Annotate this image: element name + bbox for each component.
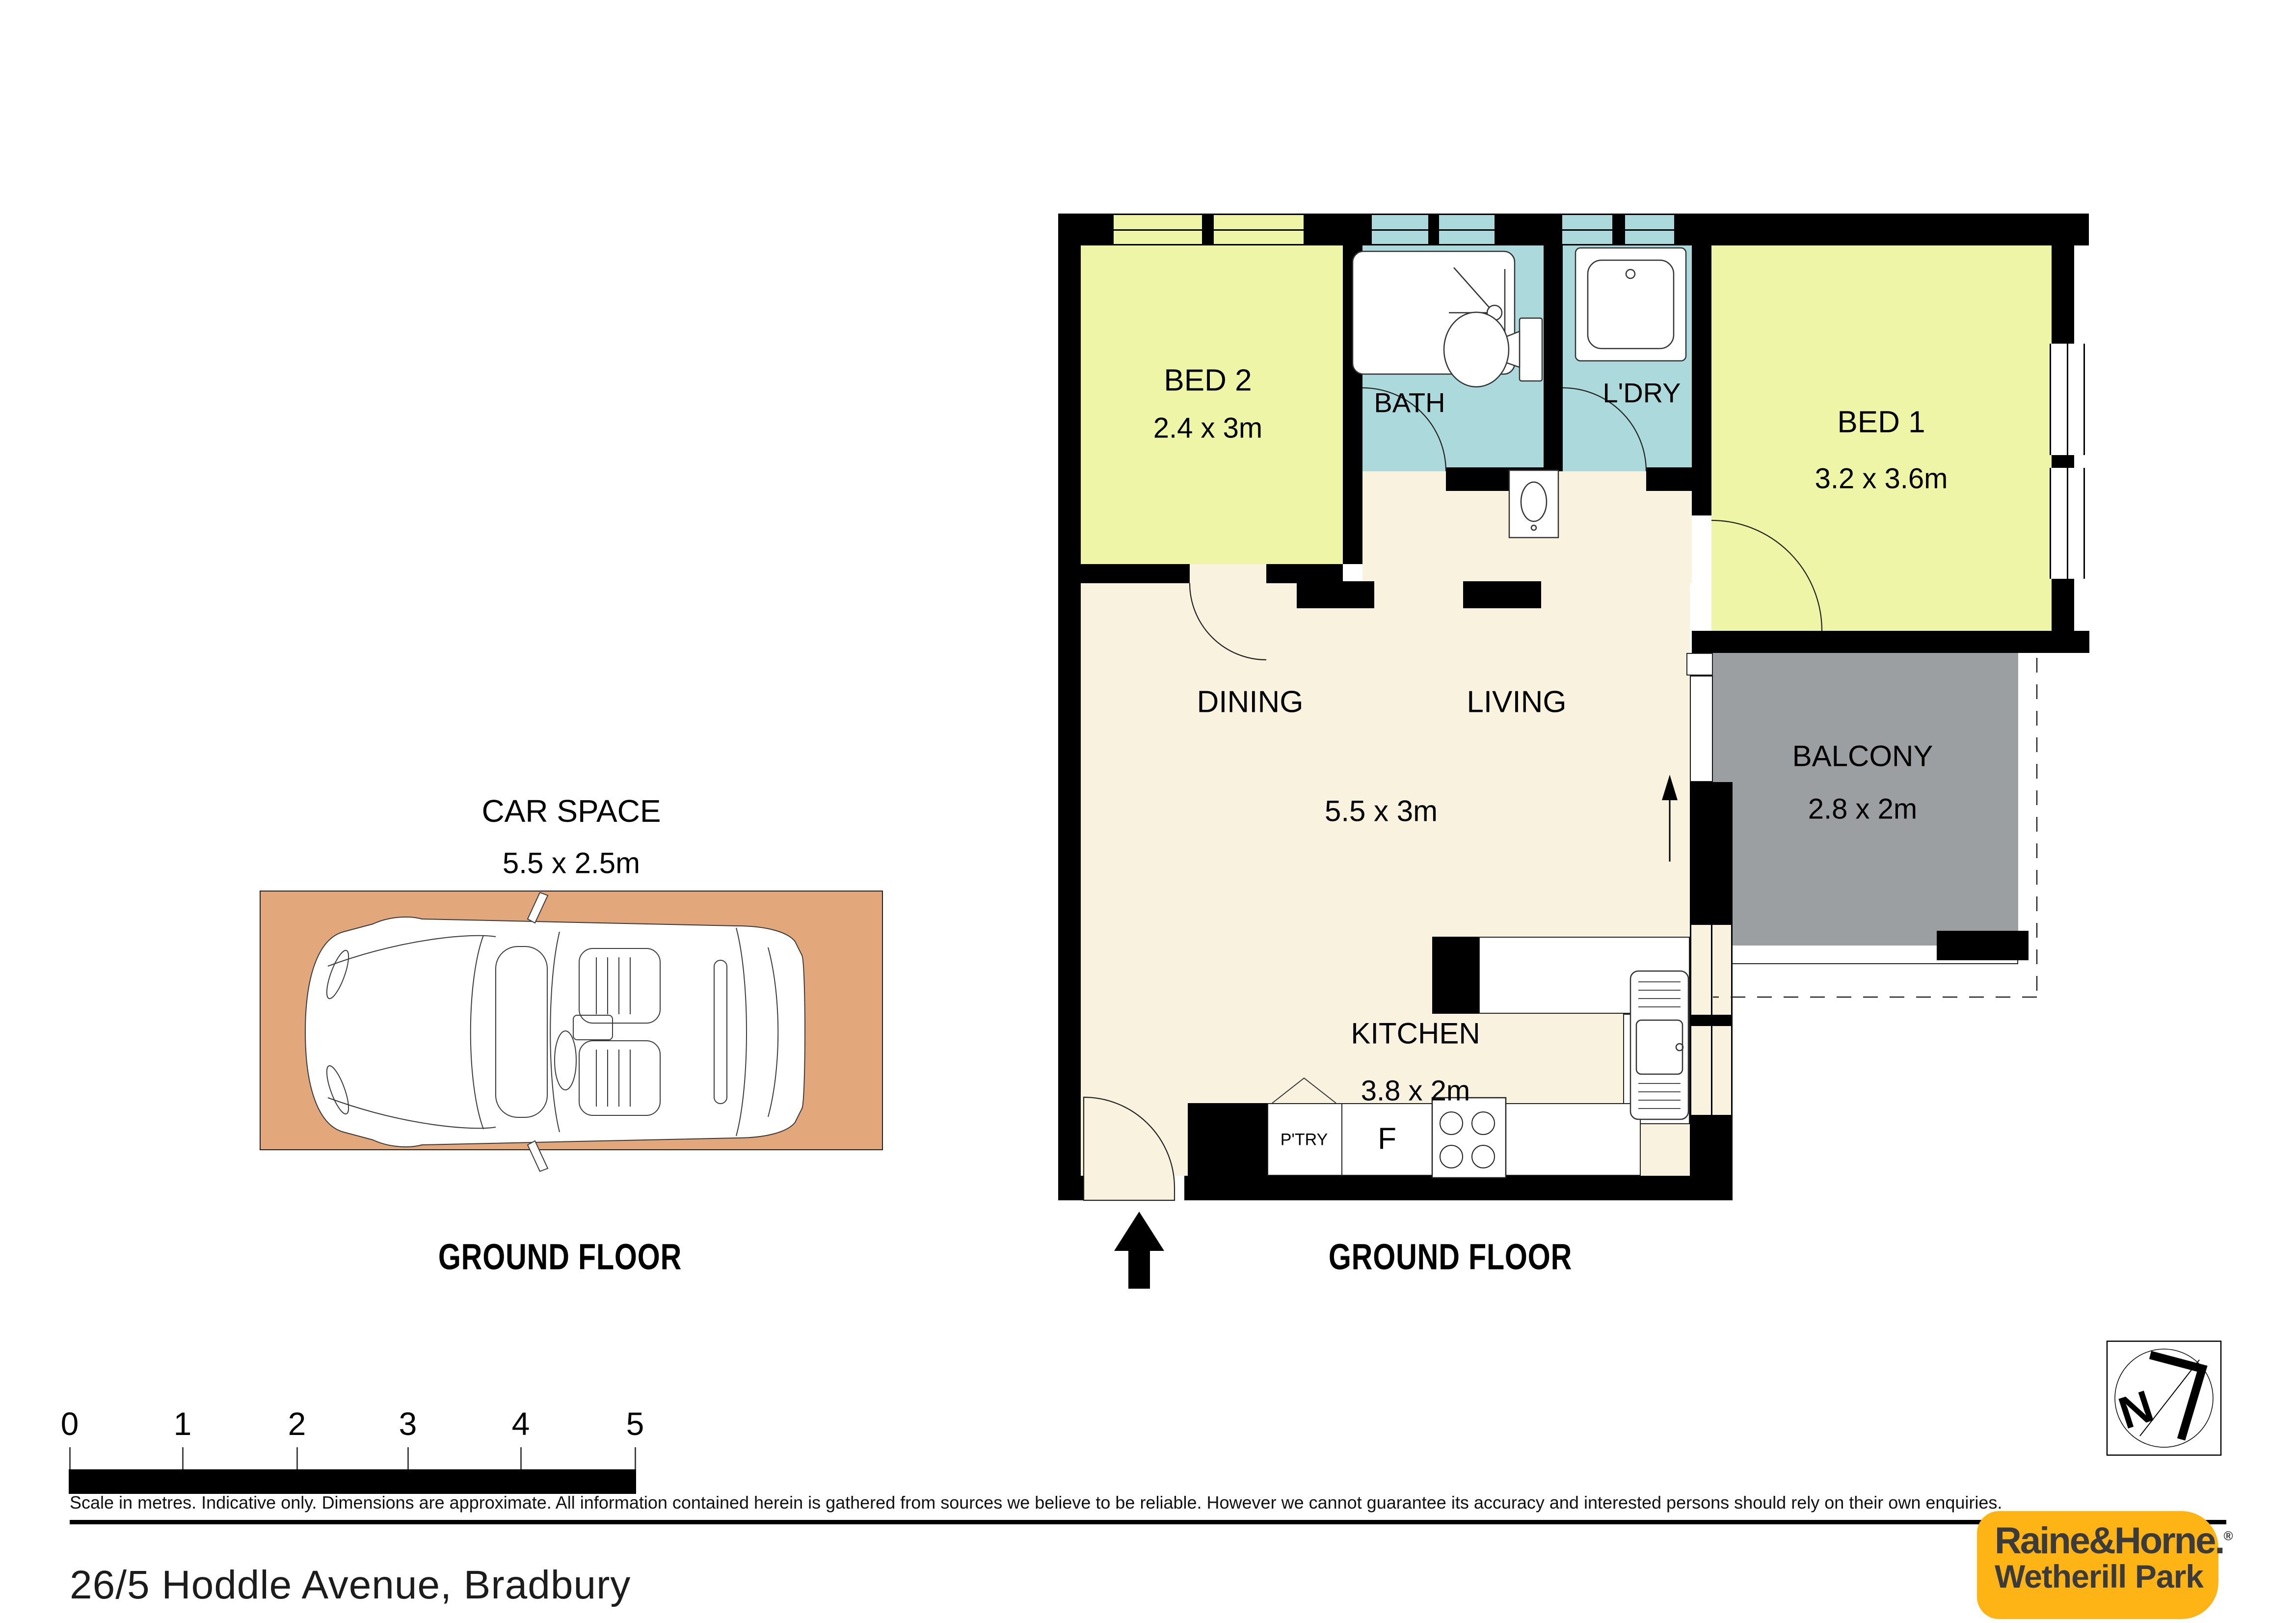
vanity-icon bbox=[1509, 470, 1558, 538]
unit-ground-floor-label: GROUND FLOOR bbox=[1298, 1236, 1602, 1278]
scale-tick bbox=[520, 1447, 522, 1469]
car-ground-floor-label: GROUND FLOOR bbox=[408, 1236, 712, 1278]
scale-tick bbox=[69, 1447, 71, 1469]
balcony-dashed-boundary bbox=[1713, 658, 2037, 997]
scale-tick bbox=[296, 1447, 298, 1469]
bed2-door-arc bbox=[1190, 583, 1266, 660]
balcony-dims: 2.8 x 2m bbox=[1808, 793, 1917, 826]
scale-tick-label: 5 bbox=[626, 1405, 644, 1442]
car-ground-floor-text: GROUND FLOOR bbox=[438, 1236, 682, 1278]
scale-bar-solid bbox=[69, 1469, 636, 1494]
living-dining-dims: 5.5 x 3m bbox=[1325, 794, 1438, 828]
dining-label: DINING bbox=[1197, 685, 1304, 720]
footer-divider bbox=[70, 1520, 2226, 1524]
scale-tick-label: 1 bbox=[174, 1405, 192, 1442]
scale-tick-label: 4 bbox=[512, 1405, 530, 1442]
balcony-door-arrow-icon bbox=[1662, 775, 1678, 862]
scale-tick bbox=[635, 1447, 636, 1469]
scale-tick bbox=[182, 1447, 184, 1469]
pantry-label: P'TRY bbox=[1281, 1131, 1328, 1150]
balcony-label: BALCONY bbox=[1792, 739, 1933, 773]
fridge-label: F bbox=[1378, 1122, 1396, 1157]
pantry-bifold-icon bbox=[1272, 1078, 1336, 1103]
disclaimer-text: Scale in metres. Indicative only. Dimens… bbox=[70, 1492, 2229, 1513]
unit-ground-floor-text: GROUND FLOOR bbox=[1329, 1236, 1572, 1278]
laundry-label: L'DRY bbox=[1602, 377, 1681, 409]
raine-and-horne-logo: Raine&Horne.® Wetherill Park bbox=[1977, 1511, 2218, 1619]
door-arcs bbox=[1190, 388, 1822, 660]
registered-trademark-icon: ® bbox=[2224, 1529, 2232, 1543]
stove-icon bbox=[1432, 1098, 1506, 1178]
scale-tick-label: 2 bbox=[288, 1405, 306, 1442]
floorplan-page: N BED 2 2.4 x 3m BATH L'DRY BED 1 3.2 x … bbox=[0, 0, 2296, 1623]
scale-tick-label: 3 bbox=[399, 1405, 417, 1442]
car-top-view-icon bbox=[305, 893, 805, 1171]
bed1-dims: 3.2 x 3.6m bbox=[1815, 462, 1948, 495]
north-compass-icon: N bbox=[2107, 1341, 2221, 1455]
scale-tick bbox=[407, 1447, 409, 1469]
toilet-icon bbox=[1444, 312, 1542, 387]
bed2-dims: 2.4 x 3m bbox=[1153, 412, 1262, 445]
laundry-tub-icon bbox=[1575, 248, 1686, 361]
plan-linework: N bbox=[0, 0, 2296, 1623]
scale-tick-label: 0 bbox=[61, 1405, 79, 1442]
living-label: LIVING bbox=[1467, 685, 1566, 720]
logo-brand-line: Raine&Horne.® bbox=[1995, 1522, 2218, 1560]
kitchen-label: KITCHEN bbox=[1351, 1017, 1480, 1051]
bed1-door-arc bbox=[1711, 520, 1822, 631]
kitchen-sink-icon bbox=[1630, 971, 1688, 1119]
car-space-dims: 5.5 x 2.5m bbox=[503, 846, 640, 880]
logo-office-line: Wetherill Park bbox=[1995, 1560, 2218, 1593]
bath-label: BATH bbox=[1374, 387, 1445, 419]
entry-door bbox=[1084, 1097, 1175, 1200]
address-text: 26/5 Hoddle Avenue, Bradbury bbox=[70, 1562, 631, 1608]
bed1-label: BED 1 bbox=[1837, 405, 1925, 440]
entry-arrow-icon bbox=[1114, 1212, 1164, 1289]
car-space-label: CAR SPACE bbox=[481, 793, 661, 829]
bed2-label: BED 2 bbox=[1164, 363, 1252, 398]
kitchen-dims: 3.8 x 2m bbox=[1361, 1075, 1470, 1108]
